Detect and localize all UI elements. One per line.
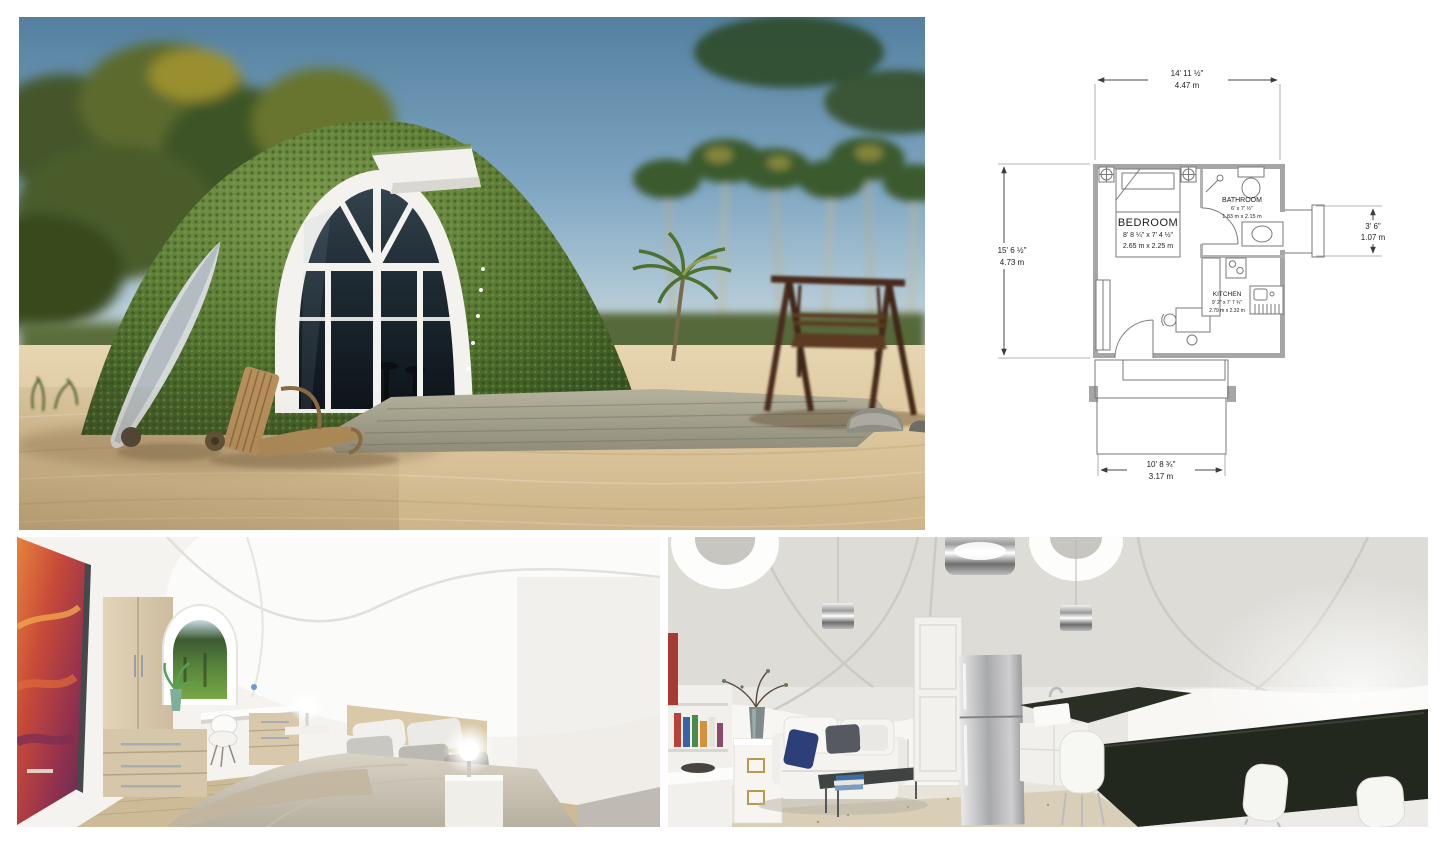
canopy: [371, 146, 481, 194]
dim-left-imperial: 15' 6 ½": [998, 246, 1027, 255]
floor-plan: 14' 11 ½" 4.47 m 15' 6 ½" 4.73 m 3' 6" 1…: [980, 40, 1440, 520]
floor-plan-drawing: 14' 11 ½" 4.47 m 15' 6 ½" 4.73 m 3' 6" 1…: [980, 40, 1440, 520]
shadow-vignette: [19, 387, 399, 530]
white-pillow: [860, 725, 888, 751]
wall-art: [17, 537, 91, 825]
living-photo: [668, 537, 1428, 827]
bathroom-size-imperial: 6' x 7' ½": [1231, 205, 1253, 212]
bathroom-label: BATHROOM: [1222, 197, 1262, 204]
stove-symbol: [1226, 258, 1246, 278]
kitchen-size-metric: 2.79 m x 2.32 m: [1209, 308, 1245, 314]
bathroom-size-metric: 1.83 m x 2.15 m: [1222, 214, 1262, 220]
red-art-sliver: [668, 633, 678, 705]
extension-lines: [998, 84, 1382, 476]
toilet-symbol: [1238, 167, 1264, 177]
dim-right-imperial: 3' 6": [1365, 222, 1381, 231]
dim-top-metric: 4.47 m: [1175, 81, 1200, 90]
kitchen-label: KITCHEN: [1213, 291, 1242, 298]
dim-left-metric: 4.73 m: [1000, 258, 1025, 267]
kitchen-size-imperial: 9' 2" x 7' 7 ¾": [1212, 300, 1242, 306]
living-render: [668, 537, 1428, 827]
bedroom-render: [17, 537, 660, 827]
gray-pillow: [825, 724, 861, 754]
bedroom-size-metric: 2.65 m x 2.25 m: [1123, 243, 1173, 250]
bedroom-label: BEDROOM: [1118, 217, 1178, 229]
entry-vestibule: [1285, 210, 1312, 253]
fridge: [959, 654, 1025, 825]
exterior-photo: [19, 17, 925, 530]
bedroom-size-imperial: 8' 8 ¼" x 7' 4 ½": [1123, 231, 1174, 239]
porch: [1095, 360, 1228, 398]
dim-bottom-metric: 3.17 m: [1149, 472, 1174, 481]
deck-outline: [1097, 398, 1226, 454]
dim-bottom-imperial: 10' 8 ¾": [1147, 460, 1176, 469]
door: [914, 617, 962, 781]
page: { "page": { "background": "#ffffff" }, "…: [0, 0, 1445, 854]
bedroom-photo: [17, 537, 660, 827]
chair: [1356, 775, 1406, 827]
ceiling-lamp: [945, 537, 1015, 575]
dimension-lines: [1004, 80, 1373, 470]
books-stack: [834, 774, 864, 790]
dim-right-metric: 1.07 m: [1361, 233, 1386, 242]
shower-symbol: [1217, 175, 1223, 181]
dimension-labels: 14' 11 ½" 4.47 m 15' 6 ½" 4.73 m 3' 6" 1…: [986, 67, 1397, 482]
exterior-render: [19, 17, 925, 530]
bowl: [681, 763, 715, 773]
dim-top-imperial: 14' 11 ½": [1171, 69, 1204, 78]
art-signature: [27, 769, 53, 773]
blue-decor-light: [251, 684, 257, 690]
